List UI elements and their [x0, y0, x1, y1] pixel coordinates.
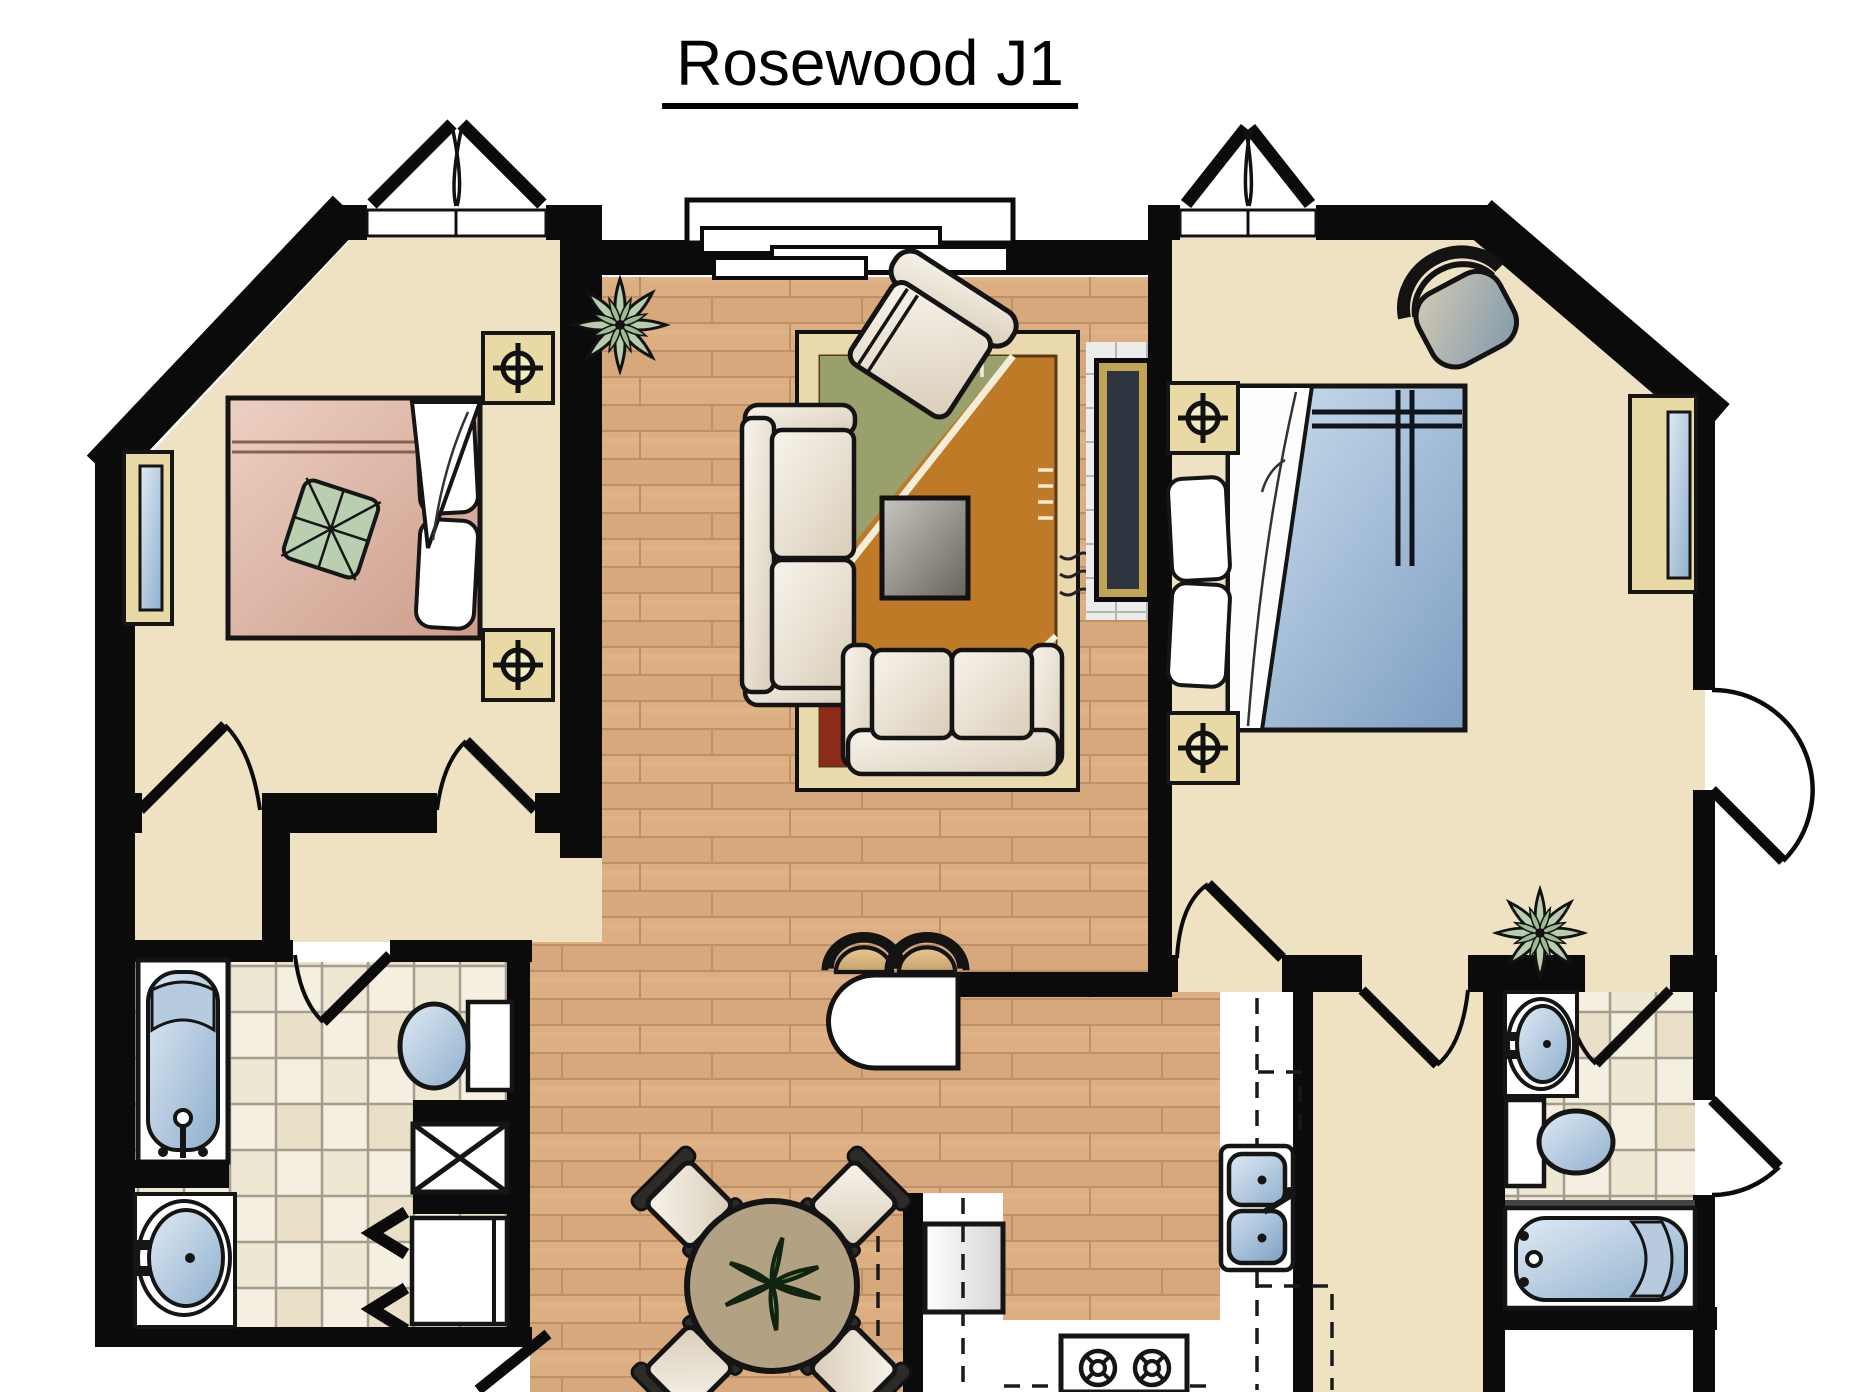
floor-plan-drawing: [0, 0, 1856, 1392]
window-right-wall: [1630, 396, 1696, 592]
kitchen-top-wall: [955, 972, 1172, 997]
bathtub: [1505, 1200, 1695, 1308]
kitchen-sink: [1221, 1146, 1296, 1270]
walk-in-closet-floor: [1313, 992, 1483, 1392]
nightstand-lamp-symbol: [483, 630, 553, 700]
nightstand-lamp-symbol: [1168, 383, 1238, 453]
potted-plant: [1496, 889, 1583, 976]
sofa: [742, 405, 855, 705]
right-outer-wall-b: [1693, 790, 1715, 1100]
french-door-left: [367, 124, 546, 236]
breakfast-bar: [828, 975, 958, 1068]
fireplace-media-niche: [1086, 342, 1148, 620]
coffee-table: [882, 498, 968, 598]
shower-stall: [413, 1124, 507, 1192]
bathroom-left-bottom-wall: [95, 1327, 532, 1347]
floor-plan-page: Rosewood J1: [0, 0, 1856, 1392]
french-door-right: [1180, 128, 1316, 236]
potted-plant: [574, 279, 666, 371]
vanity-sink: [135, 1194, 235, 1327]
bed-left: [228, 398, 480, 638]
toilet: [400, 1002, 512, 1090]
nightstand-lamp-symbol: [1168, 713, 1238, 783]
bay-window: [687, 200, 1013, 278]
vanity-sink: [1505, 992, 1577, 1096]
range: [1061, 1336, 1187, 1392]
kitchen-left-wall: [903, 1193, 923, 1392]
window-left-wall: [124, 452, 172, 624]
loveseat: [843, 645, 1062, 774]
bathroom-right-bottom-wall: [1483, 1307, 1717, 1330]
closet-right-wall: [1293, 992, 1313, 1392]
nightstand-lamp-symbol: [483, 333, 553, 403]
bathtub: [135, 960, 229, 1188]
